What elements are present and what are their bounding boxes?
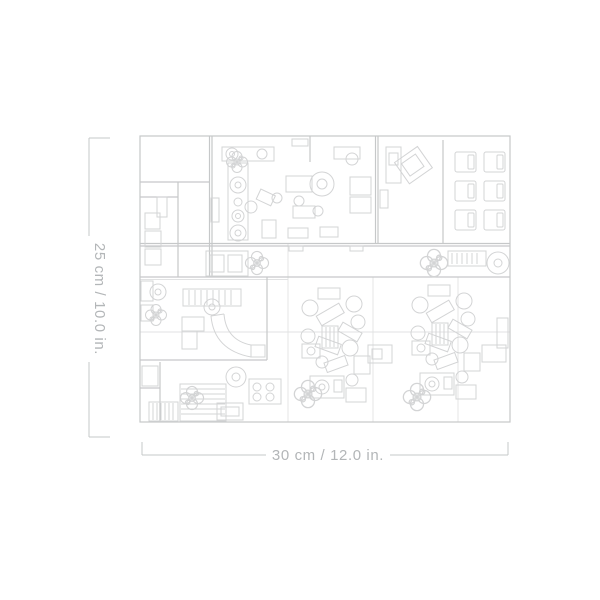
desk-pod-left — [301, 288, 370, 402]
side-tables — [368, 318, 508, 363]
floor-plan-dimension-diagram: 25 cm / 10.0 in. 30 cm / 12.0 in. — [0, 0, 600, 600]
height-dimension-label: 25 cm / 10.0 in. — [91, 243, 108, 355]
product-image-canvas: 25 cm / 10.0 in. 30 cm / 12.0 in. — [0, 0, 600, 600]
stairs-and-copier — [149, 367, 322, 421]
private-office — [380, 147, 432, 208]
seating-grid — [455, 152, 505, 230]
width-dimension-label: 30 cm / 12.0 in. — [272, 447, 384, 464]
desk-pod-right — [403, 285, 480, 411]
corridor-items — [206, 246, 509, 277]
floor-plan-furniture — [141, 139, 509, 421]
